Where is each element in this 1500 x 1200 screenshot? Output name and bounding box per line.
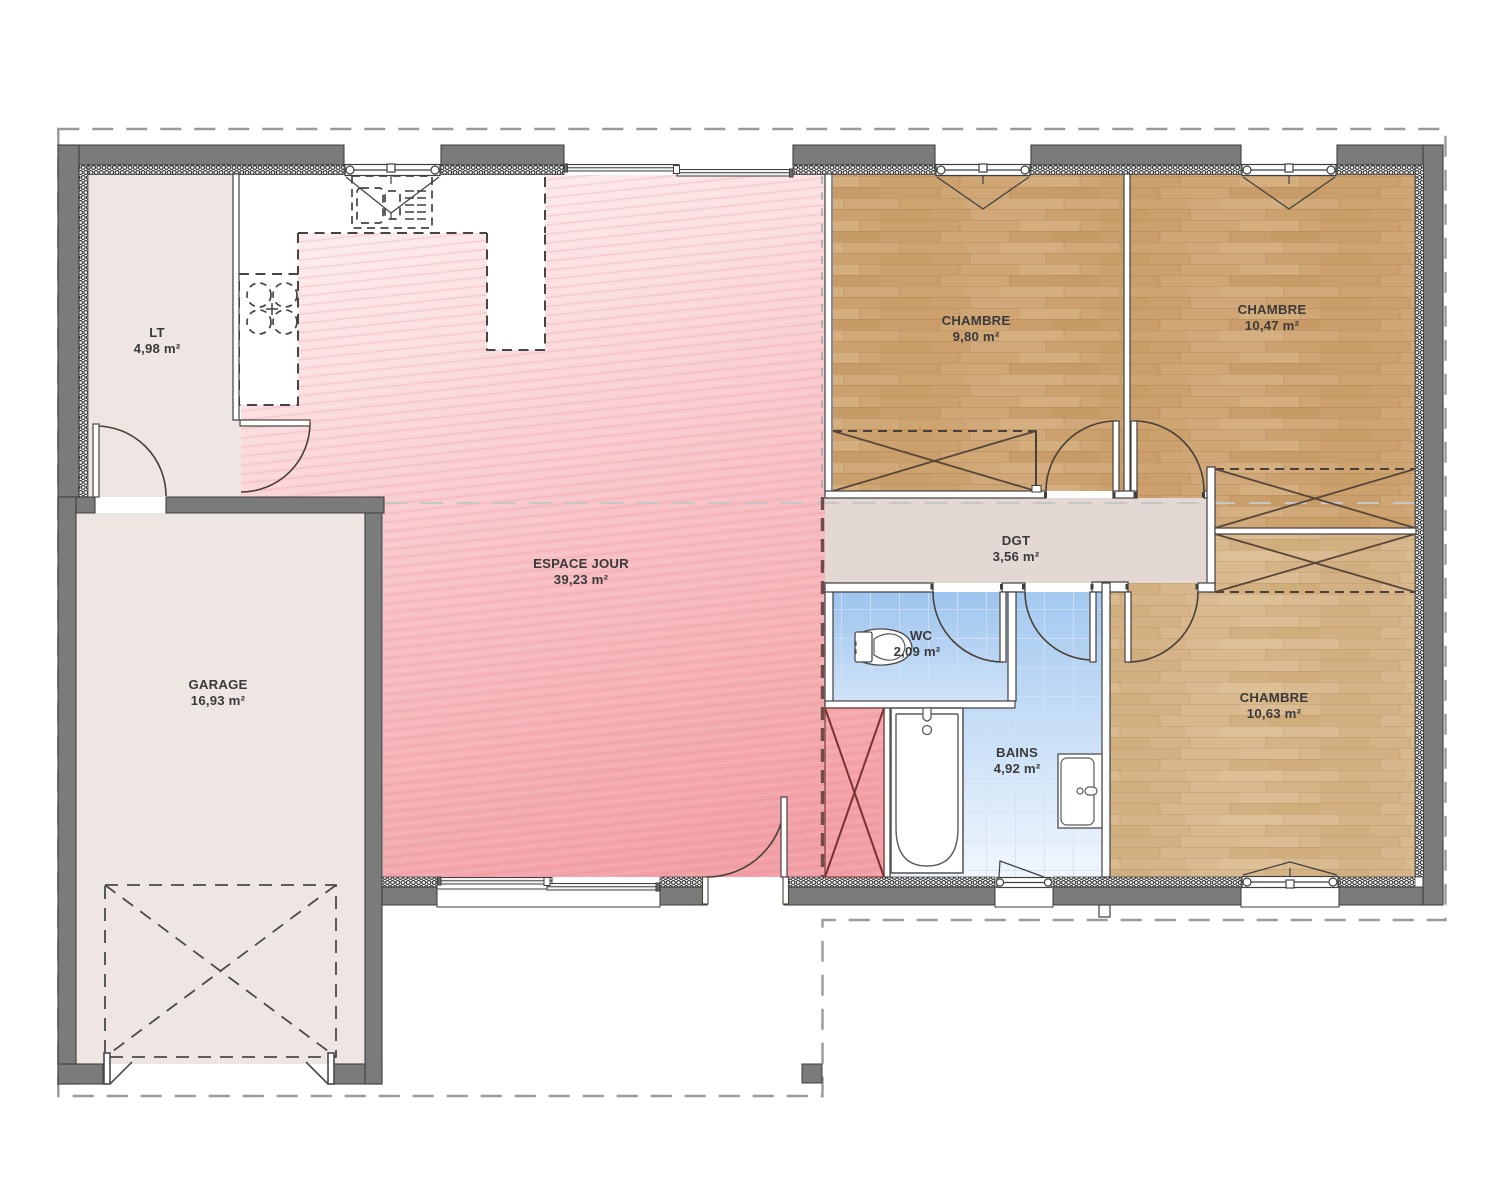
svg-text:10,47 m²: 10,47 m² (1245, 318, 1300, 333)
svg-text:CHAMBRE: CHAMBRE (1240, 690, 1309, 705)
svg-text:10,63 m²: 10,63 m² (1247, 706, 1302, 721)
svg-text:DGT: DGT (1002, 533, 1030, 548)
svg-text:4,92 m²: 4,92 m² (994, 761, 1041, 776)
svg-text:CHAMBRE: CHAMBRE (1238, 302, 1307, 317)
svg-text:BAINS: BAINS (996, 745, 1038, 760)
svg-text:GARAGE: GARAGE (188, 677, 247, 692)
svg-text:16,93 m²: 16,93 m² (191, 693, 246, 708)
svg-text:9,80 m²: 9,80 m² (953, 329, 1000, 344)
svg-text:3,56 m²: 3,56 m² (993, 549, 1040, 564)
svg-text:ESPACE JOUR: ESPACE JOUR (533, 556, 629, 571)
svg-text:LT: LT (149, 325, 165, 340)
svg-text:CHAMBRE: CHAMBRE (942, 313, 1011, 328)
svg-text:2,09 m²: 2,09 m² (894, 644, 941, 659)
svg-text:39,23 m²: 39,23 m² (554, 572, 609, 587)
svg-text:4,98 m²: 4,98 m² (134, 341, 181, 356)
svg-text:WC: WC (910, 628, 933, 643)
